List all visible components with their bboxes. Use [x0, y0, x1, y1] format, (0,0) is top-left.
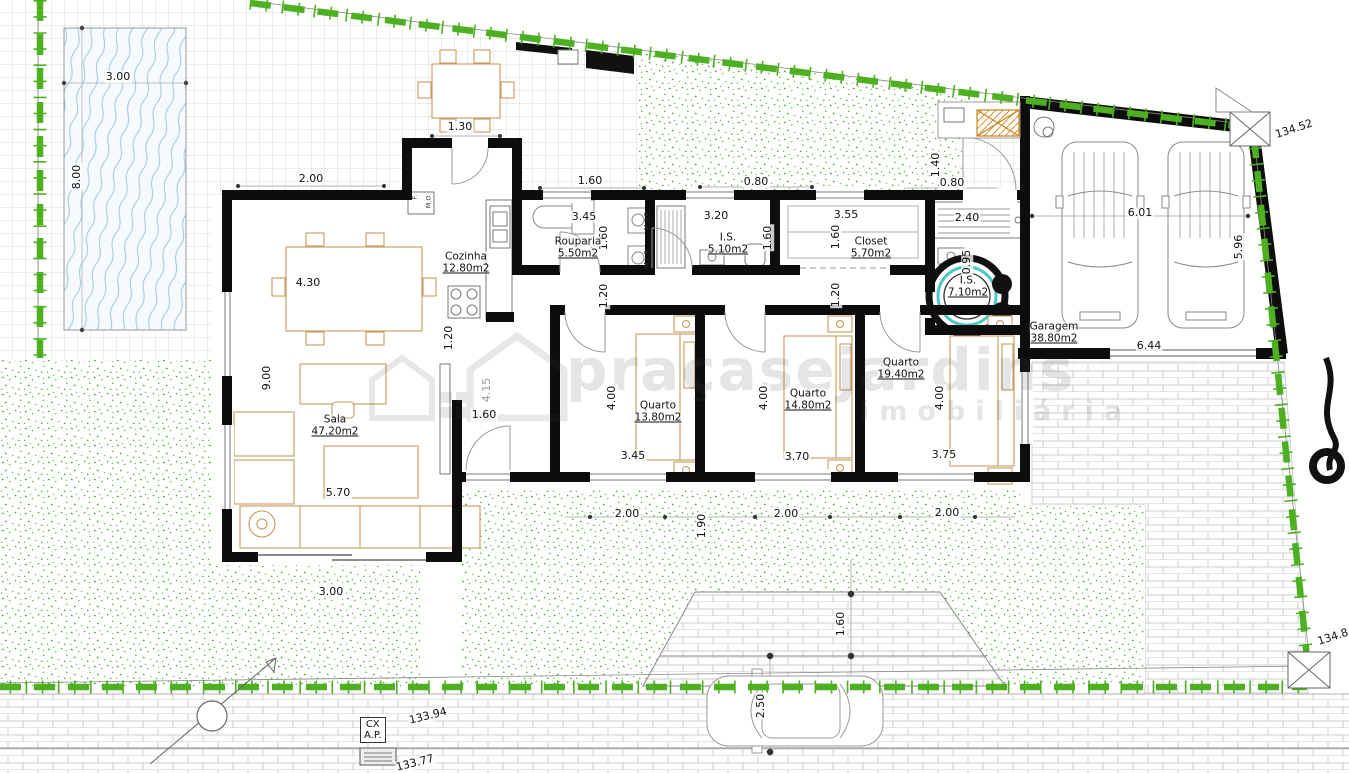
dimension-label: 3.20: [703, 210, 730, 222]
dimension-label: 1.60: [471, 409, 498, 421]
dimension-label: 4.00: [758, 385, 770, 412]
dimension-label: 134.8: [1315, 626, 1349, 647]
dimension-label: 1.40: [930, 152, 942, 179]
dimension-label: 8.00: [71, 164, 83, 191]
room-label: Quarto: [790, 388, 826, 399]
dimension-label: 134.52: [1273, 117, 1315, 140]
utility-box-line1: CX: [364, 719, 382, 730]
dimension-label: 1.30: [447, 121, 474, 133]
dimension-label: 5.70: [325, 487, 352, 499]
room-label: Garagem: [1030, 321, 1079, 332]
dimension-label: M.L.R.: [644, 247, 651, 269]
dimension-label: 4.00: [606, 385, 618, 412]
dimension-label: 1.60: [835, 611, 847, 638]
plan-labels: CX A.P. 3.008.001.302.001.600.801.400.80…: [0, 0, 1349, 773]
dimension-label: 3.00: [318, 586, 345, 598]
dimension-label: 0.95: [961, 249, 973, 276]
utility-box-label: CX A.P.: [360, 717, 386, 743]
utility-box-line2: A.P.: [364, 730, 382, 741]
dimension-label: 2.00: [298, 173, 325, 185]
room-area-label: 7.10m2: [948, 287, 988, 298]
dimension-label: 3.45: [571, 211, 598, 223]
dimension-label: 3.45: [620, 450, 647, 462]
room-area-label: 19.40m2: [878, 369, 925, 380]
room-label: Quarto: [640, 400, 676, 411]
room-area-label: 47.20m2: [312, 426, 359, 437]
dimension-label: 5.96: [1233, 234, 1245, 261]
dimension-label: 6.44: [1136, 340, 1163, 352]
dimension-label: F.: [412, 194, 419, 201]
room-label: Sala: [324, 414, 346, 425]
dimension-label: M.S.R.: [644, 209, 651, 231]
room-area-label: 5.10m2: [708, 244, 748, 255]
dimension-label: 4.00: [934, 385, 946, 412]
room-label: Closet: [855, 236, 888, 247]
dimension-label: 1.60: [830, 224, 842, 251]
dimension-label: 1.20: [830, 282, 842, 309]
dimension-label: 2.00: [773, 508, 800, 520]
dimension-label: 1.60: [762, 225, 774, 252]
dimension-label: 2.00: [614, 508, 641, 520]
dimension-label: 4.30: [295, 277, 322, 289]
dimension-label: 1.90: [696, 513, 708, 540]
dimension-label: 133.77: [394, 752, 436, 773]
dimension-label: 2.00: [934, 507, 961, 519]
room-area-label: 38.80m2: [1031, 333, 1078, 344]
dimension-label: 1.20: [598, 283, 610, 310]
room-area-label: 5.70m2: [851, 248, 891, 259]
dimension-label: 6.01: [1127, 207, 1154, 219]
dimension-label: 0.80: [743, 176, 770, 188]
room-area-label: 13.80m2: [635, 412, 682, 423]
room-label: Quarto: [883, 357, 919, 368]
dimension-label: 9.00: [261, 365, 273, 392]
dimension-label: 0.80: [939, 177, 966, 189]
room-label: I.S.: [960, 275, 976, 286]
room-area-label: 14.80m2: [785, 400, 832, 411]
dimension-label: 133.94: [407, 705, 449, 726]
room-label: Rouparia: [555, 236, 602, 247]
dimension-label: M.O.: [426, 193, 433, 210]
dimension-label: 3.00: [105, 71, 132, 83]
dimension-label: 2.40: [954, 212, 981, 224]
room-label: Cozinha: [445, 251, 487, 262]
dimension-label: 1.20: [443, 325, 455, 352]
room-area-label: 5.50m2: [558, 248, 598, 259]
room-area-label: 12.80m2: [443, 263, 490, 274]
floor-plan-page: praçasejardins imobiliária CX A.P. 3.008…: [0, 0, 1349, 773]
dimension-label: 3.75: [931, 449, 958, 461]
dimension-label: 2.50: [755, 693, 767, 720]
dimension-label: 4.15: [481, 377, 493, 404]
dimension-label: 1.60: [577, 175, 604, 187]
dimension-label: 3.70: [784, 451, 811, 463]
dimension-label: 3.55: [833, 209, 860, 221]
room-label: I.S.: [720, 232, 736, 243]
